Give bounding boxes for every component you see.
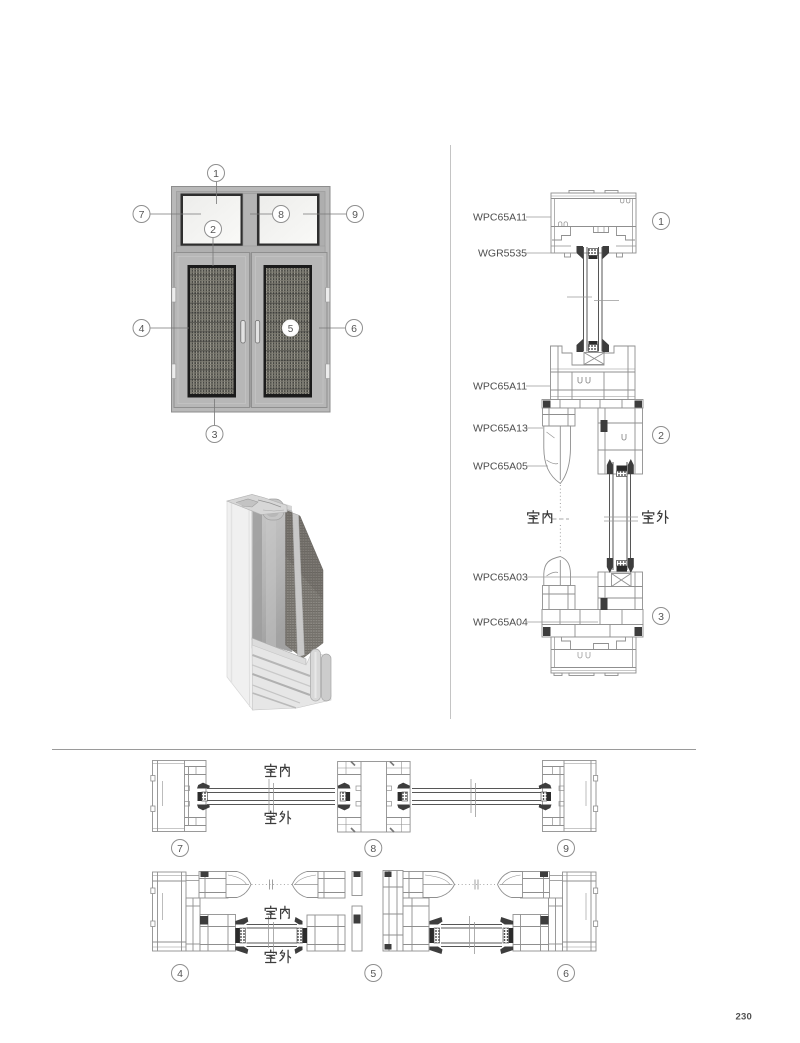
- svg-text:230: 230: [736, 1012, 752, 1023]
- svg-text:4: 4: [177, 968, 183, 980]
- svg-text:5: 5: [288, 324, 294, 335]
- svg-text:1: 1: [658, 216, 664, 228]
- svg-text:9: 9: [352, 209, 358, 221]
- svg-text:WGR5535: WGR5535: [478, 248, 527, 260]
- svg-text:8: 8: [370, 843, 376, 855]
- svg-text:2: 2: [210, 224, 216, 236]
- svg-text:1: 1: [213, 168, 219, 180]
- svg-text:9: 9: [563, 843, 569, 855]
- svg-text:WPC65A03: WPC65A03: [473, 572, 528, 584]
- svg-text:6: 6: [351, 323, 357, 335]
- svg-text:8: 8: [278, 209, 284, 221]
- svg-text:5: 5: [370, 968, 376, 980]
- svg-text:7: 7: [177, 843, 183, 855]
- svg-text:7: 7: [139, 209, 145, 221]
- svg-text:2: 2: [658, 430, 664, 442]
- svg-text:3: 3: [212, 429, 218, 441]
- svg-text:WPC65A11: WPC65A11: [473, 381, 527, 393]
- svg-text:WPC65A05: WPC65A05: [473, 461, 528, 473]
- svg-text:6: 6: [563, 968, 569, 980]
- svg-text:WPC65A11: WPC65A11: [473, 212, 527, 224]
- svg-text:WPC65A04: WPC65A04: [473, 617, 528, 629]
- svg-text:4: 4: [139, 323, 145, 335]
- svg-text:WPC65A13: WPC65A13: [473, 423, 528, 435]
- svg-text:3: 3: [658, 611, 664, 623]
